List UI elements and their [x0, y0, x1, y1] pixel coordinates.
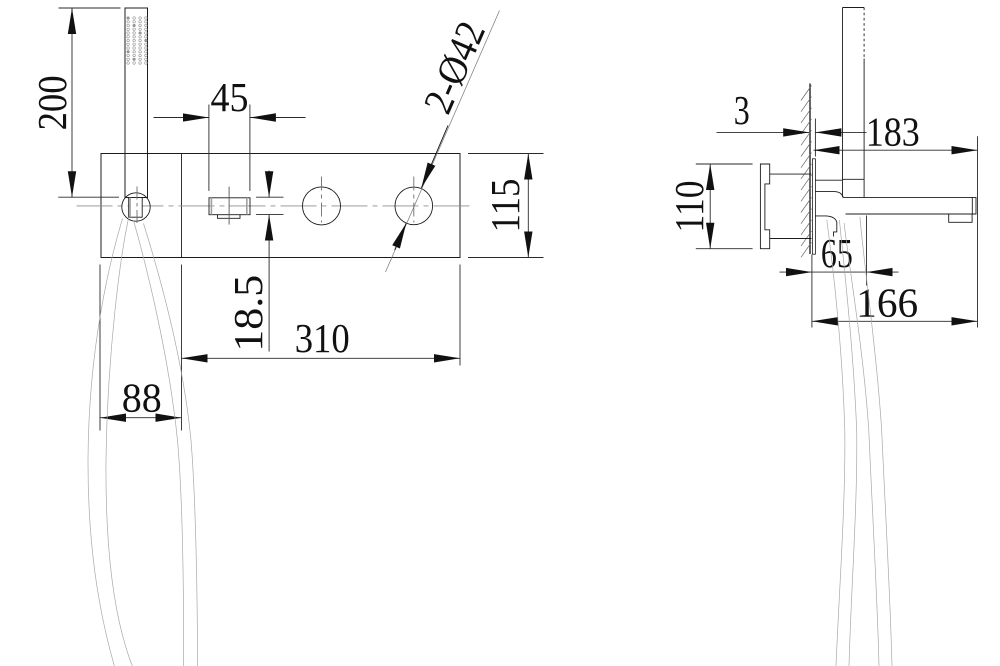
svg-text:310: 310 — [295, 315, 350, 361]
svg-text:183: 183 — [866, 109, 920, 155]
svg-text:3: 3 — [734, 87, 750, 133]
svg-text:115: 115 — [482, 179, 528, 233]
svg-text:200: 200 — [29, 75, 75, 130]
svg-text:110: 110 — [666, 181, 712, 233]
svg-text:88: 88 — [122, 375, 162, 421]
svg-text:166: 166 — [856, 280, 918, 326]
svg-text:45: 45 — [211, 74, 249, 120]
svg-text:18.5: 18.5 — [225, 275, 271, 352]
